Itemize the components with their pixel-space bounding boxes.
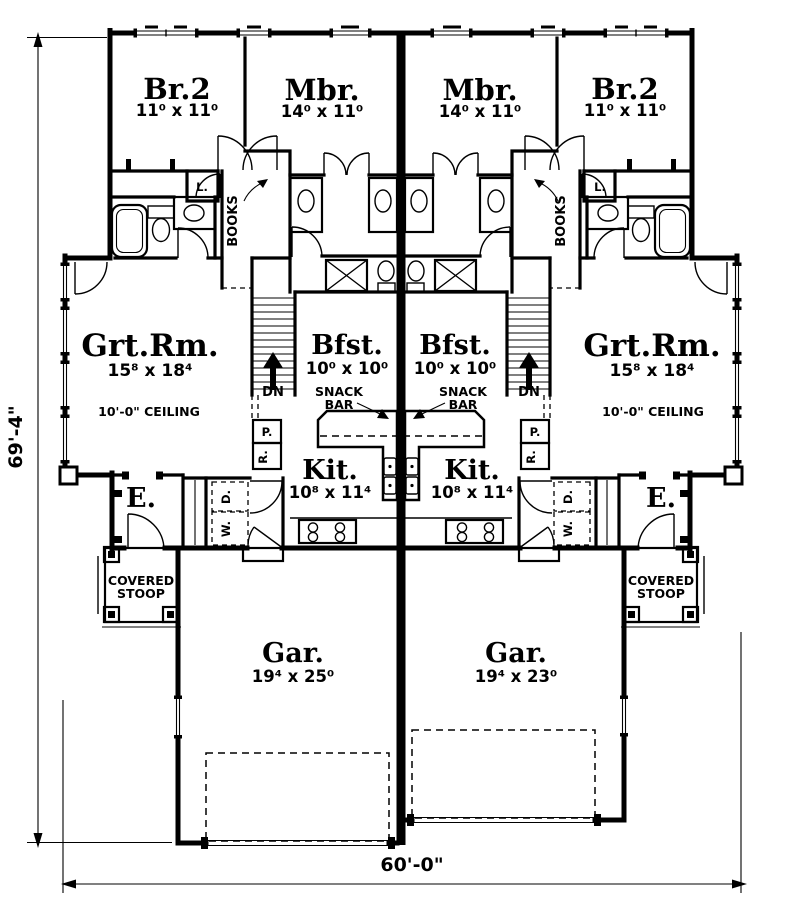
room-size-breakfast-left: 10⁰ x 10⁰ — [306, 359, 389, 378]
room-label-kitchen-right: Kit. — [444, 455, 500, 486]
covered-stoop-label-right-2: STOOP — [637, 586, 685, 601]
room-size-breakfast-right: 10⁰ x 10⁰ — [414, 359, 497, 378]
refrigerator-label-right: R. — [524, 450, 538, 463]
room-size-bedroom2-right: 11⁰ x 11⁰ — [584, 101, 667, 120]
covered-stoop-label-left-2: STOOP — [117, 586, 165, 601]
ceiling-note-left: 10'-0" CEILING — [98, 404, 200, 419]
stairs-down-label-left: DN — [262, 385, 284, 400]
ceiling-note-right: 10'-0" CEILING — [602, 404, 704, 419]
refrigerator-label-left: R. — [256, 450, 270, 463]
room-size-kitchen-right: 10⁸ x 11⁴ — [431, 483, 514, 502]
washer-label-right: W. — [561, 521, 575, 537]
dimension-line-left — [27, 32, 172, 848]
overall-width-dimension: 60'-0" — [380, 854, 443, 876]
books-label-left: BOOKS — [226, 195, 241, 246]
room-size-garage-left: 19⁴ x 25⁰ — [252, 667, 335, 686]
room-label-garage-left: Gar. — [262, 638, 324, 669]
room-size-greatroom-left: 15⁸ x 18⁴ — [107, 361, 192, 381]
room-size-kitchen-left: 10⁸ x 11⁴ — [289, 483, 372, 502]
dryer-label-right: D. — [561, 490, 575, 504]
snack-bar-label-left-2: BAR — [325, 397, 354, 412]
books-label-right: BOOKS — [554, 195, 569, 246]
garage-left-structure — [174, 548, 397, 849]
pantry-label-right: P. — [530, 425, 541, 439]
garage-right-structure — [405, 548, 628, 826]
overall-depth-dimension: 69'-4" — [5, 405, 27, 468]
room-size-bedroom2-left: 11⁰ x 11⁰ — [136, 101, 219, 120]
linen-label-left: L. — [196, 180, 208, 194]
room-size-master-left: 14⁰ x 11⁰ — [281, 102, 364, 121]
pantry-label-left: P. — [262, 425, 273, 439]
entry-label-right: E. — [646, 483, 676, 514]
room-size-greatroom-right: 15⁸ x 18⁴ — [609, 361, 694, 381]
party-wall — [397, 31, 406, 846]
linen-label-right: L. — [594, 180, 606, 194]
stairs-down-label-right: DN — [518, 385, 540, 400]
floor-plan-page: Br.2 11⁰ x 11⁰ Mbr. 14⁰ x 11⁰ Grt.Rm. 15… — [0, 0, 800, 909]
room-label-breakfast-left: Bfst. — [311, 330, 383, 361]
floor-plan-canvas: Br.2 11⁰ x 11⁰ Mbr. 14⁰ x 11⁰ Grt.Rm. 15… — [0, 0, 800, 909]
room-size-master-right: 14⁰ x 11⁰ — [439, 102, 522, 121]
room-label-breakfast-right: Bfst. — [419, 330, 491, 361]
dryer-label-left: D. — [219, 490, 233, 504]
room-size-garage-right: 19⁴ x 23⁰ — [475, 667, 558, 686]
room-label-greatroom-left: Grt.Rm. — [81, 328, 218, 364]
washer-label-left: W. — [219, 521, 233, 537]
snack-bar-label-right-2: BAR — [449, 397, 478, 412]
garage-door-overhead-left — [206, 753, 389, 841]
garage-door-overhead-right — [412, 730, 595, 818]
entry-label-left: E. — [126, 483, 156, 514]
room-label-garage-right: Gar. — [485, 638, 547, 669]
room-label-kitchen-left: Kit. — [302, 455, 358, 486]
room-label-greatroom-right: Grt.Rm. — [583, 328, 720, 364]
